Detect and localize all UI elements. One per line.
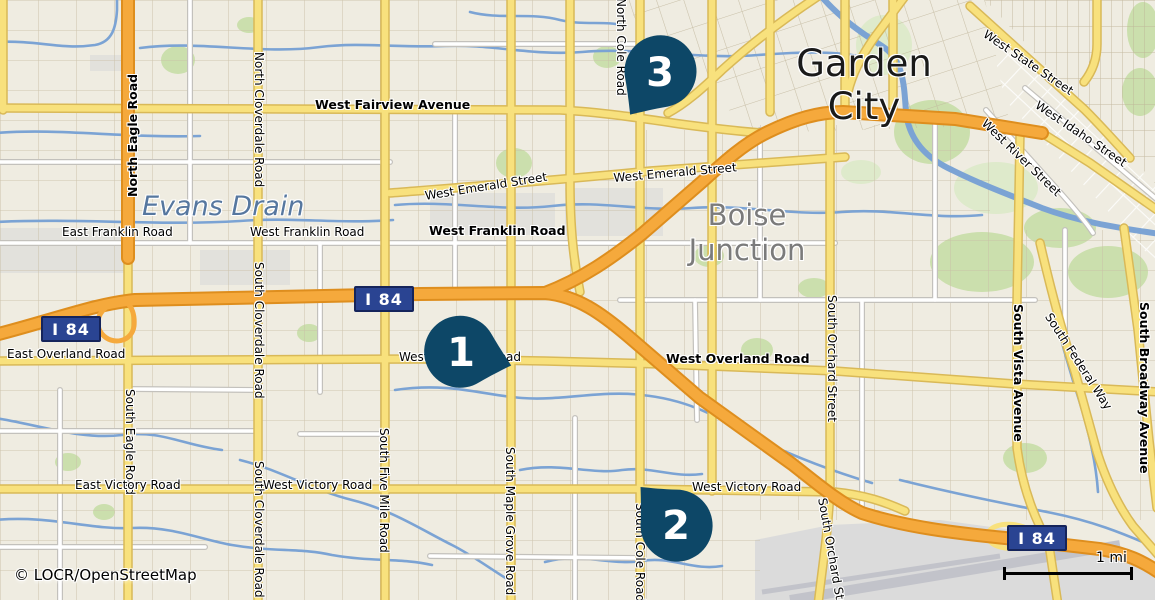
map-marker-2[interactable]: 2 [616,465,736,585]
map[interactable]: West Fairview AvenueNorth Eagle RoadNort… [0,0,1155,600]
street-label: East Franklin Road [62,226,173,239]
marker-number: 3 [646,50,674,96]
marker-number: 1 [447,330,475,376]
street-label: West Overland Road [666,352,810,366]
marker-number: 2 [662,503,690,549]
route-shield-i84: I 84 [41,316,101,342]
map-marker-1[interactable]: 1 [401,292,521,412]
street-label: West Victory Road [263,479,372,492]
street-label: South Orchard Street [825,295,838,422]
street-label: West Franklin Road [429,224,566,238]
route-shield-i84: I 84 [1007,525,1067,551]
street-label: West Franklin Road [250,226,364,239]
street-label: South Broadway Avenue [1137,302,1151,474]
street-label: North Eagle Road [126,74,140,197]
scale-bar [1003,572,1133,575]
scale-label: 1 mi [1096,550,1127,566]
street-label: South Five Mile Road [377,428,390,553]
street-label: North Cloverdale Road [252,52,265,187]
place-label: Boise Junction [689,198,806,268]
street-label: South Cloverdale Road [252,262,265,399]
street-label: South Vista Avenue [1011,304,1025,442]
street-label: East Victory Road [75,479,181,492]
street-label: East Overland Road [7,348,125,361]
water-label: Evans Drain [142,191,304,222]
map-marker-3[interactable]: 3 [600,12,720,132]
map-canvas[interactable] [0,0,1155,600]
street-label: West Fairview Avenue [315,98,470,112]
place-label: Garden City [796,42,932,128]
map-attribution: © LOCR/OpenStreetMap [14,566,197,584]
street-label: South Maple Grove Road [503,447,516,595]
